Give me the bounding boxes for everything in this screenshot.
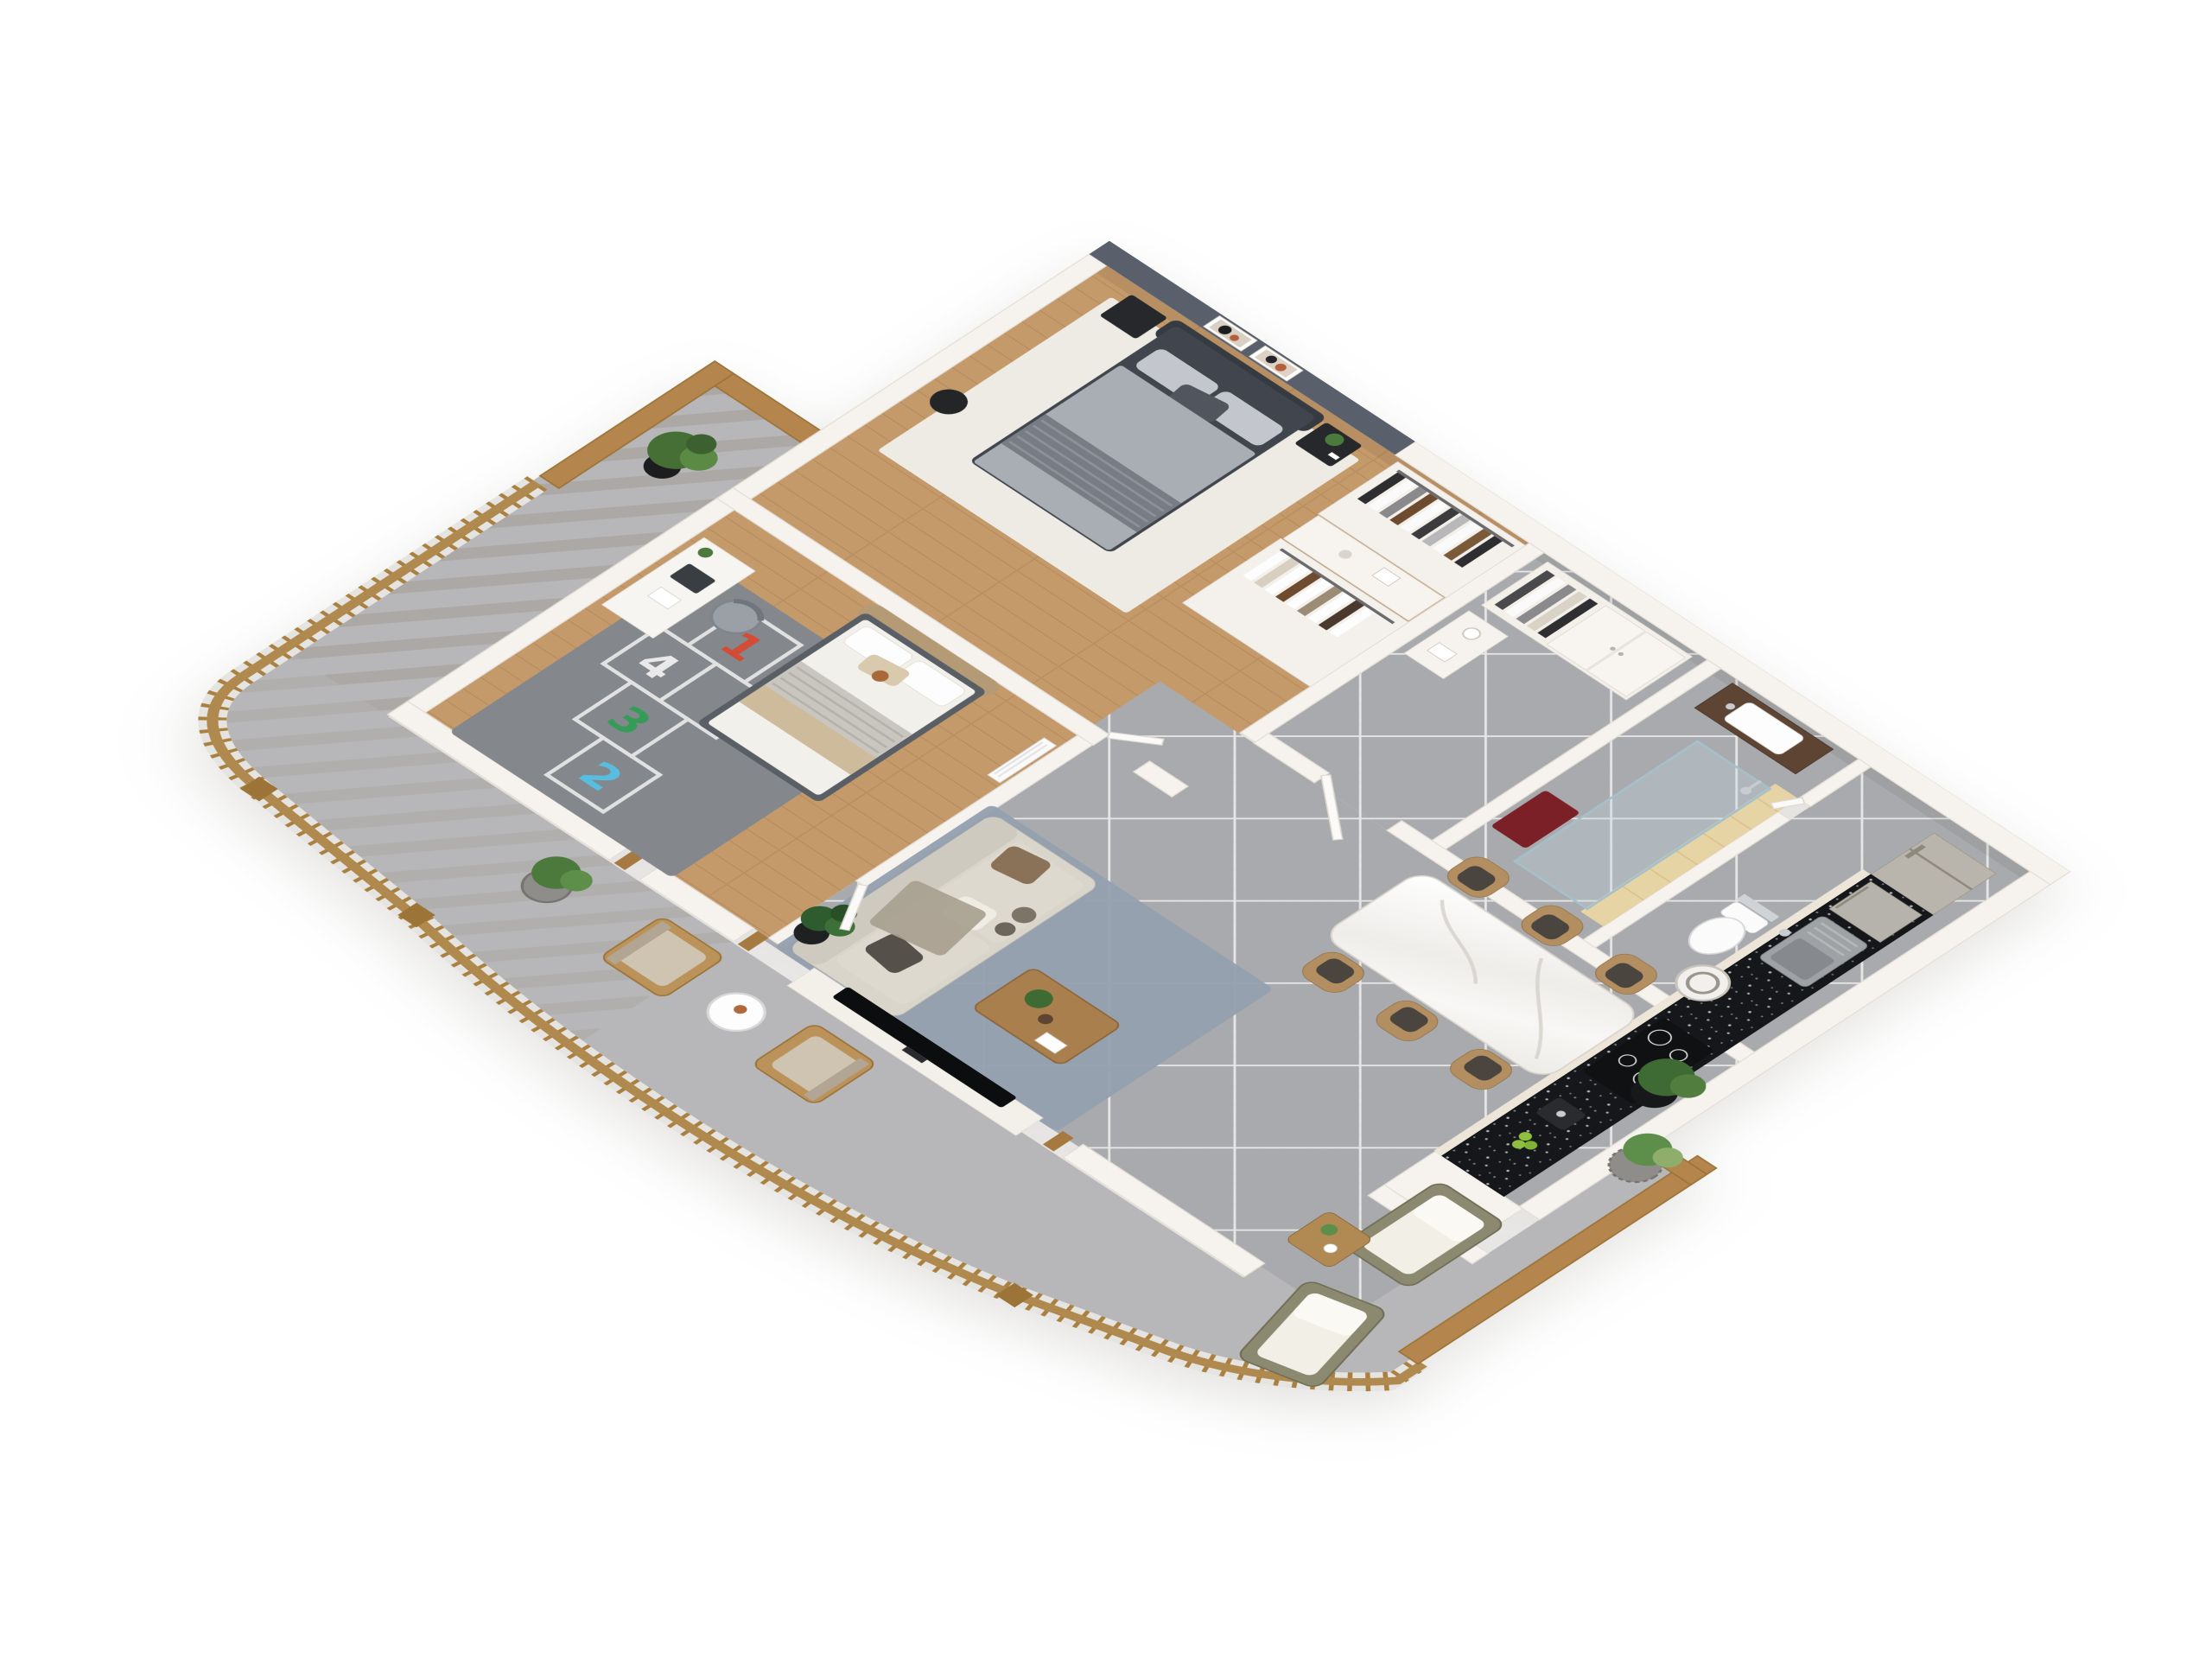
apartment-iso-plate: 1 4 3 2 [85, 159, 2128, 1499]
floor-plan-svg: 1 4 3 2 [85, 159, 2128, 1499]
floor-plan-scene: 1 4 3 2 [0, 0, 2212, 1659]
